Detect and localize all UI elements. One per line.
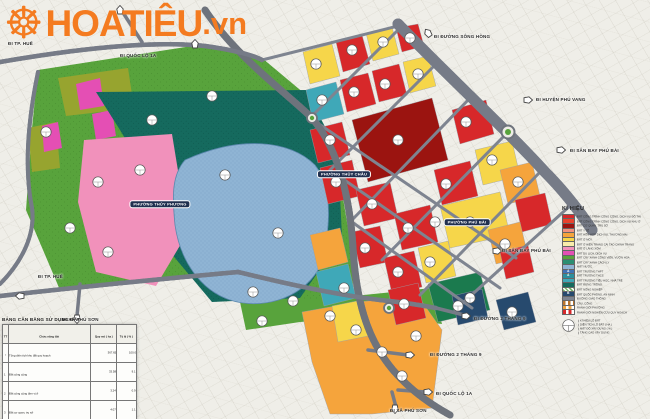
legend-label: ĐẤT TRƯỜNG THPT	[577, 270, 603, 273]
ward-label-thuy-phuong: PHƯỜNG THỦY PHƯƠNG	[129, 200, 190, 208]
table-row: * Tổng diện tích khu đất quy hoạch 367.6…	[3, 343, 137, 362]
table-row: 3 Đất cơ quan, trụ sở 4.07 1.1	[3, 400, 137, 419]
legend-panel: KÍ HIỆU ĐẤT CÔNG TRÌNH CÔNG CỘNG, DỊCH V…	[562, 206, 649, 335]
road-label-2thang9-2: ĐI ĐƯỜNG 2 THÁNG 9	[430, 352, 482, 357]
cell-area: 4.07	[111, 408, 116, 412]
legend-label: ĐẤT QUỐC PHÒNG, AN NINH	[577, 292, 615, 295]
legend-label: MẶT NƯỚC	[577, 265, 592, 268]
lot-note-id: KÍ HIỆU LÔ ĐẤT	[578, 319, 612, 322]
cell-name: Đất công cộng	[9, 372, 27, 376]
legend-label: ĐẤT Ở MỚI	[577, 238, 592, 241]
legend-label: RANH GIỚI PHƯỜNG	[577, 306, 605, 309]
legend-label: CẦU, CỐNG	[577, 301, 592, 304]
lot-note-floors: TẦNG CAO XÂY DỰNG	[578, 332, 612, 335]
cell-name: Đất cơ quan, trụ sở	[9, 410, 33, 414]
legend-title: KÍ HIỆU	[562, 206, 649, 212]
cell-tt: 2	[4, 391, 6, 395]
col-pct: Tỷ lệ ( % )	[120, 334, 133, 338]
cell-name: Tổng diện tích khu đất quy hoạch	[9, 353, 50, 357]
cell-pct: 100.0	[129, 351, 136, 355]
hoatieu-logo[interactable]: ☸ HOATIÊU .vn	[4, 2, 247, 46]
legend-label: ĐẤT Ở HIỆN TRẠNG CẢI TẠO CHỈNH TRANG	[577, 242, 634, 245]
land-use-table-block: BẢNG CÂN BẰNG SỬ DỤNG ĐẤT TT Chức năng đ…	[2, 317, 119, 419]
cell-pct: 9.1	[132, 370, 136, 374]
legend-label: ĐẤT CƠ QUAN, TRỤ SỞ	[577, 224, 608, 227]
road-label-phu-son-bottom: ĐI XÃ PHÚ SƠN	[390, 408, 427, 413]
cell-name: Đất công cộng đơn vị ở	[9, 391, 38, 395]
col-area: Quy mô ( ha )	[94, 334, 112, 338]
legend-row: RANH GIỚI NGHIÊN CỨU QUY HOẠCH	[562, 310, 649, 315]
logo-brand-text: HOATIÊU	[45, 3, 202, 45]
legend-label: ĐẤT HỖN HỢP DỊCH VỤ, THƯƠNG MẠI	[577, 233, 627, 236]
road-label-2thang9-1: ĐI ĐƯỜNG 2 THÁNG 9	[474, 316, 526, 321]
table-row: 1 Đất công cộng 33.58 9.1	[3, 362, 137, 381]
table-row: 2 Đất công cộng đơn vị ở 3.24 0.9	[3, 381, 137, 400]
road-label-phu-vang: ĐI HUYỆN PHÚ VANG	[536, 97, 586, 102]
planning-map-page: ☸ HOATIÊU .vn ĐI TP. HUẾ ĐI QUỐC LỘ 1A Đ…	[0, 0, 650, 419]
ward-label-phu-bai: PHƯỜNG PHÚ BÀI	[444, 218, 491, 226]
road-label-san-bay-1: ĐI SÂN BAY PHÚ BÀI	[570, 148, 619, 153]
road-label-song-hong: ĐI ĐƯỜNG SÔNG HỒNG	[434, 34, 490, 39]
legend-label: ĐẤT Y TẾ	[577, 229, 589, 232]
legend-label: ĐẤT Ở LÀNG XÓM	[577, 247, 601, 250]
road-label-ql1a-top: ĐI QUỐC LỘ 1A	[120, 53, 156, 58]
lot-symbol-circle	[562, 319, 575, 332]
table-header-row: TT Chức năng đất Quy mô ( ha ) Tỷ lệ ( %…	[3, 324, 137, 343]
legend-label: ĐƯỜNG GIAO THÔNG	[577, 297, 606, 300]
legend-label: ĐẤT CÂY XANH CÔNG VIÊN, VƯỜN HOA	[577, 256, 630, 259]
cell-pct: 1.1	[132, 408, 136, 412]
cell-pct: 0.9	[132, 389, 136, 393]
lot-note-area: DIỆN TÍCH LÔ ĐẤT ( HA )	[578, 323, 612, 326]
legend-label: RANH GIỚI NGHIÊN CỨU QUY HOẠCH	[577, 311, 627, 314]
legend-label: ĐẤT NÔNG NGHIỆP	[577, 288, 603, 291]
cell-tt: *	[5, 353, 6, 357]
ship-wheel-icon: ☸	[4, 2, 43, 46]
legend-entries: ĐẤT CÔNG TRÌNH CÔNG CỘNG, DỊCH VỤ ĐÔ THỊ…	[562, 215, 649, 315]
road-label-san-bay-2: ĐI SÂN BAY PHÚ BÀI	[502, 248, 551, 253]
legend-label: ĐẤT RỪNG TRỒNG	[577, 283, 602, 286]
cell-area: 367.65	[108, 351, 117, 355]
land-use-table-title: BẢNG CÂN BẰNG SỬ DỤNG ĐẤT	[2, 317, 119, 322]
legend-label: ĐẤT DU LỊCH, DỊCH VỤ	[577, 251, 607, 254]
cell-area: 33.58	[109, 370, 116, 374]
lot-symbol-key: KÍ HIỆU LÔ ĐẤT DIỆN TÍCH LÔ ĐẤT ( HA ) M…	[562, 319, 649, 336]
legend-label: ĐẤT TRƯỜNG TIỂU HỌC, NHÀ TRẺ	[577, 279, 623, 282]
legend-label: ĐẤT TRƯỜNG THCS	[577, 274, 604, 277]
legend-label: ĐẤT CÂY XANH CÁCH LY	[577, 261, 609, 264]
col-name: Chức năng đất	[39, 334, 59, 338]
col-tt: TT	[4, 334, 7, 338]
legend-label: ĐẤT CÔNG TRÌNH CÔNG CỘNG, DỊCH VỤ KHU Ở	[577, 220, 640, 223]
land-use-table: TT Chức năng đất Quy mô ( ha ) Tỷ lệ ( %…	[2, 324, 137, 419]
road-label-ql1a-bottom: ĐI QUỐC LỘ 1A	[436, 391, 472, 396]
cell-tt: 1	[4, 372, 6, 376]
lot-note-density: MẬT ĐỘ XÂY DỰNG ( % )	[578, 328, 612, 331]
ward-label-thuy-chau: PHƯỜNG THỦY CHÂU	[317, 170, 371, 178]
legend-label: ĐẤT CÔNG TRÌNH CÔNG CỘNG, DỊCH VỤ ĐÔ THỊ	[577, 215, 641, 218]
lot-symbol-notes: KÍ HIỆU LÔ ĐẤT DIỆN TÍCH LÔ ĐẤT ( HA ) M…	[578, 319, 629, 336]
cell-area: 3.24	[111, 389, 116, 393]
legend-swatch	[562, 309, 575, 315]
logo-tld-text: .vn	[202, 6, 247, 42]
road-label-tp-hue-left: ĐI TP. HUẾ	[38, 274, 63, 279]
cell-tt: 3	[4, 410, 6, 414]
